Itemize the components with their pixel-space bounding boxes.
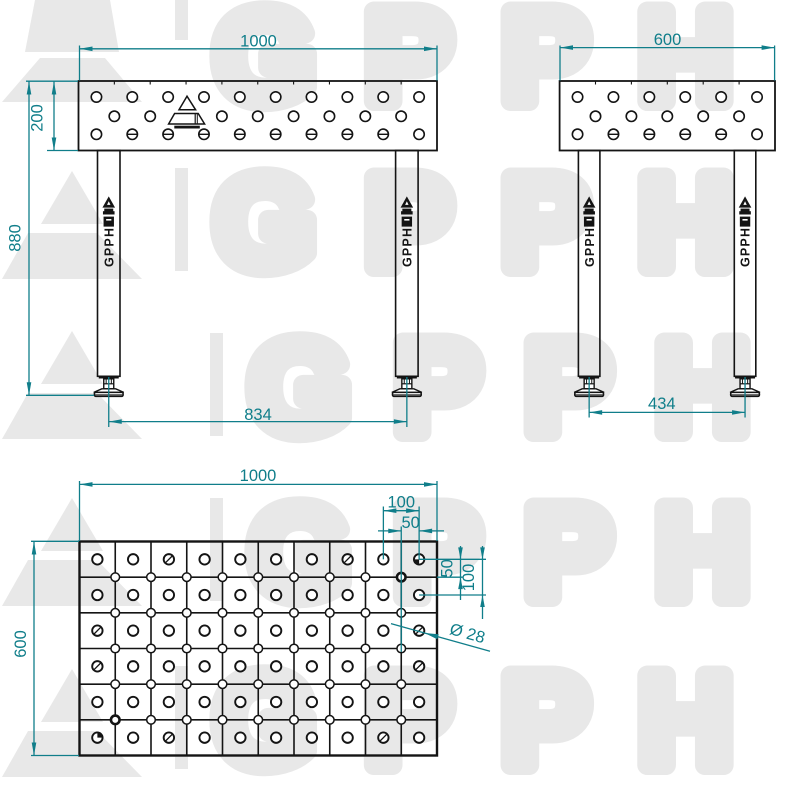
svg-text:834: 834 (244, 406, 272, 424)
svg-text:GPPH: GPPH (249, 479, 793, 625)
svg-text:1000: 1000 (240, 467, 277, 485)
svg-text:880: 880 (7, 224, 25, 252)
svg-text:600: 600 (12, 630, 30, 658)
svg-text:600: 600 (654, 31, 682, 49)
svg-text:434: 434 (648, 395, 676, 413)
svg-text:GPPH: GPPH (214, 0, 782, 129)
svg-text:100: 100 (460, 564, 478, 592)
svg-text:GPPH: GPPH (249, 314, 793, 460)
svg-text:GPPH: GPPH (583, 228, 597, 267)
svg-text:100: 100 (387, 493, 415, 511)
svg-text:50: 50 (438, 559, 456, 577)
svg-text:GPPH: GPPH (214, 149, 782, 295)
svg-text:200: 200 (29, 104, 47, 132)
svg-text:50: 50 (402, 514, 420, 532)
svg-text:1000: 1000 (240, 32, 277, 50)
svg-text:GPPH: GPPH (400, 228, 414, 267)
svg-text:GPPH: GPPH (102, 228, 116, 267)
svg-text:GPPH: GPPH (739, 228, 753, 267)
